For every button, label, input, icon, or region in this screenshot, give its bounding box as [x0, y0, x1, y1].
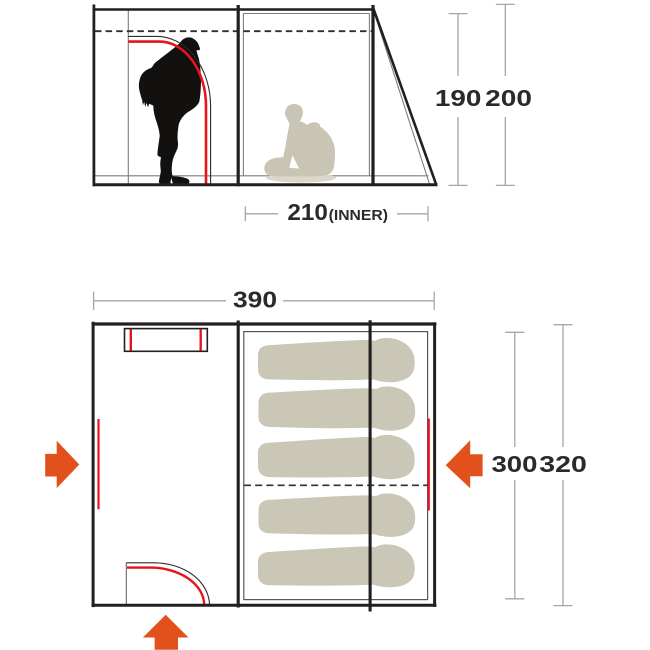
svg-text:390: 390 [233, 286, 277, 312]
svg-text:(INNER): (INNER) [329, 208, 389, 224]
svg-text:320: 320 [539, 451, 587, 477]
svg-text:300: 300 [492, 451, 538, 477]
svg-text:200: 200 [485, 85, 532, 111]
svg-text:190: 190 [435, 85, 482, 111]
svg-text:210: 210 [287, 199, 328, 225]
